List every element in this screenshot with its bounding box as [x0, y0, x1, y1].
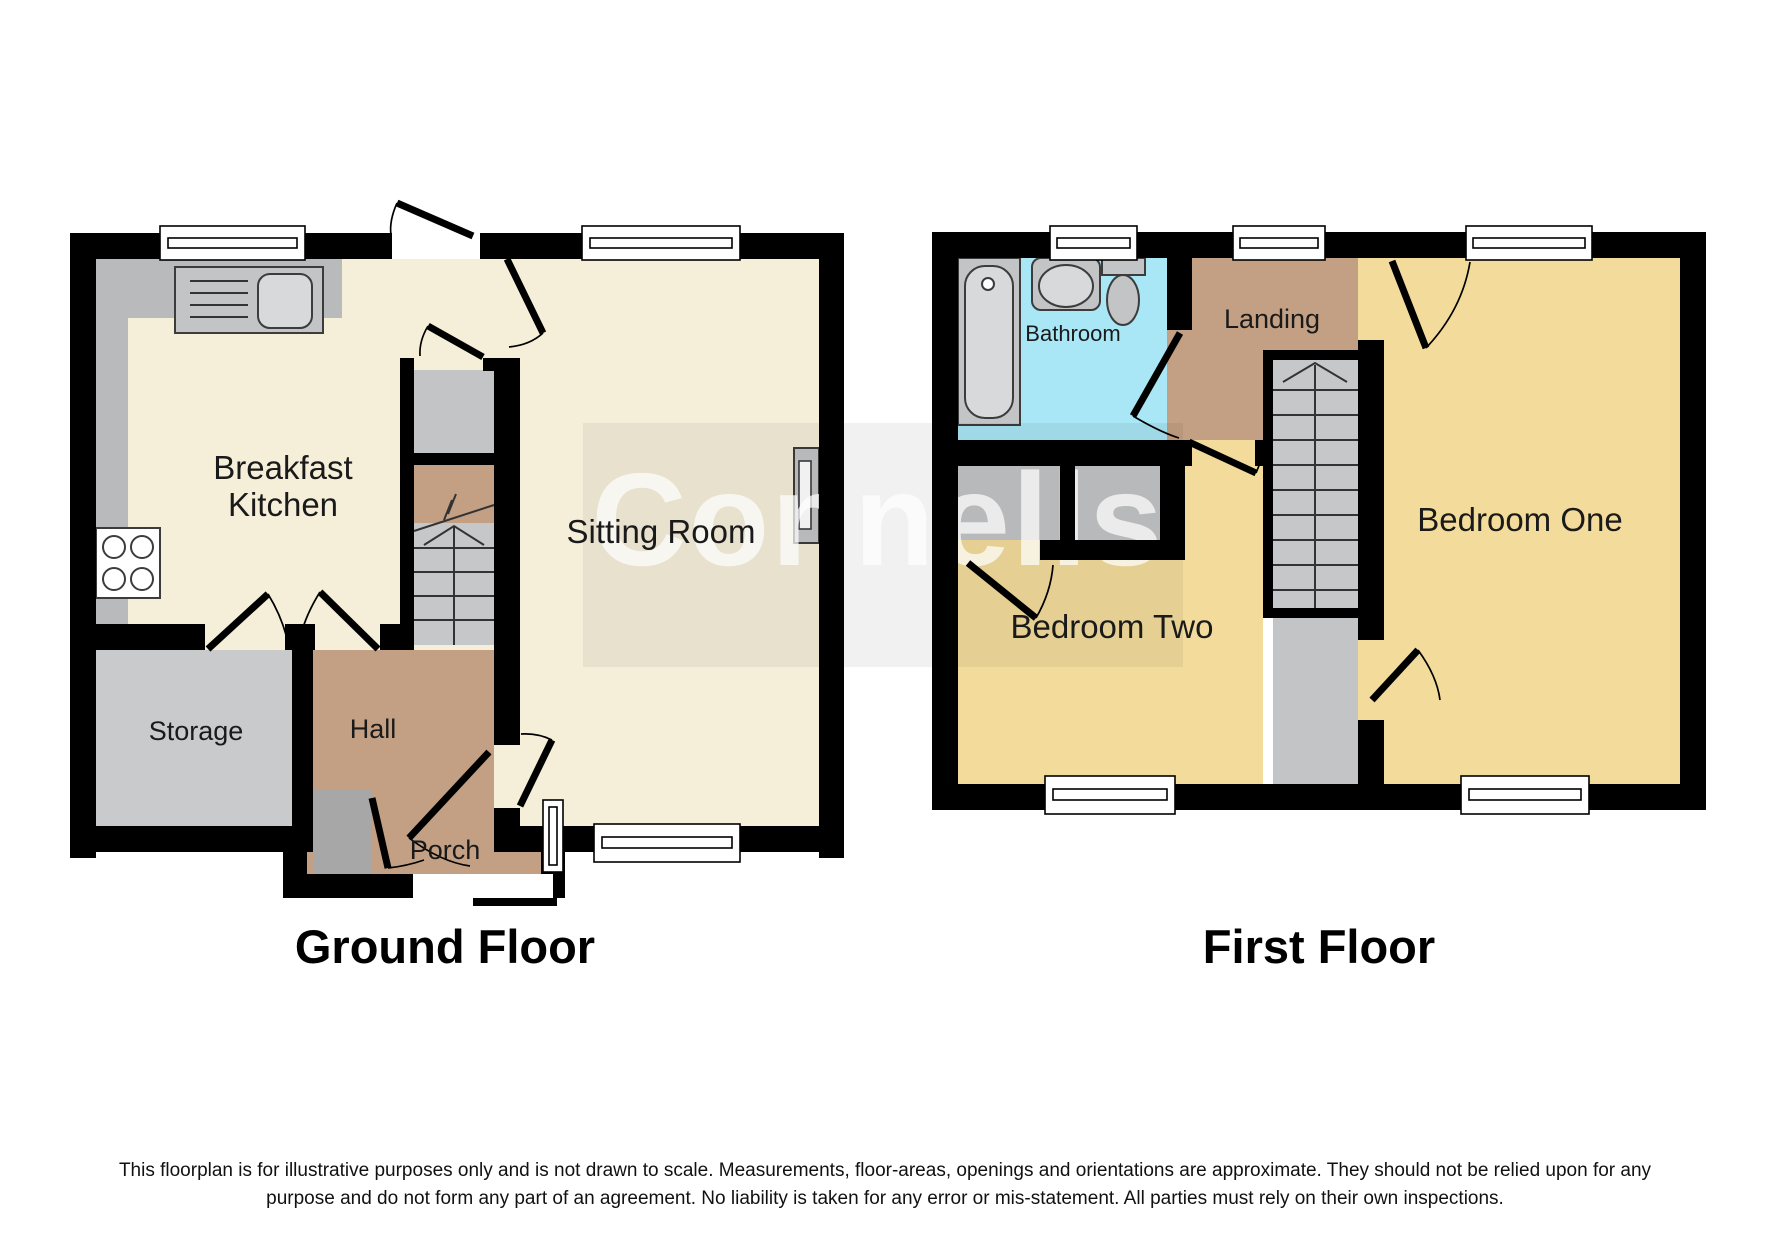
first-floor-title: First Floor [1203, 920, 1435, 973]
window-porch-side [543, 800, 563, 872]
hob-burner [131, 536, 153, 558]
disclaimer-line1: This floorplan is for illustrative purpo… [119, 1160, 1652, 1181]
hob-burner [103, 536, 125, 558]
ground-cupboard [414, 370, 494, 453]
porch-store-block [313, 790, 372, 874]
window-sitting-top [582, 226, 740, 260]
ground-floor-title: Ground Floor [295, 920, 595, 973]
landing-floor-left [1192, 258, 1263, 440]
label-sitting-room: Sitting Room [567, 513, 756, 550]
under-stairs-cupboard [1273, 618, 1358, 784]
wall [553, 874, 565, 898]
wall [70, 826, 313, 852]
wall [70, 624, 205, 650]
label-bathroom: Bathroom [1025, 321, 1120, 346]
wall [1263, 350, 1368, 360]
door-threshold [473, 898, 557, 906]
floorplan-canvas: Connells [0, 0, 1771, 1240]
label-landing: Landing [1224, 304, 1320, 334]
ground-stairs-upper [414, 463, 494, 523]
window-bathroom-top [1050, 226, 1137, 260]
window-bedroom-one-bottom [1461, 776, 1589, 814]
wall [400, 453, 508, 465]
wall [1060, 466, 1075, 540]
wall [494, 358, 520, 745]
window-bedroom-two-bottom [1045, 776, 1175, 814]
wall [283, 874, 413, 898]
toilet-bowl [1107, 275, 1139, 325]
hob-burner [131, 568, 153, 590]
wall [1263, 608, 1368, 618]
door-rear-exterior [391, 203, 473, 236]
wall [932, 440, 1167, 466]
sink-bowl [258, 274, 312, 328]
wall [1160, 440, 1185, 560]
bath-tap [982, 278, 994, 290]
window-sitting-bottom [594, 824, 740, 862]
hob-burner [103, 568, 125, 590]
label-breakfast-kitchen-line2: Kitchen [228, 486, 338, 523]
label-hall: Hall [350, 714, 397, 744]
wall [70, 233, 96, 858]
wall [400, 358, 414, 650]
label-bedroom-two: Bedroom Two [1011, 608, 1214, 645]
disclaimer-line2: purpose and do not form any part of an a… [266, 1188, 1504, 1209]
window-kitchen-top [160, 226, 305, 260]
label-breakfast-kitchen-line1: Breakfast [213, 449, 352, 486]
wall [292, 650, 313, 826]
wall [1358, 340, 1384, 640]
label-storage: Storage [149, 716, 244, 746]
window-landing-top [1233, 226, 1325, 260]
wall [1680, 232, 1706, 810]
window-bedroom-one-top [1466, 226, 1592, 260]
wall [819, 233, 844, 858]
wall [1040, 540, 1160, 560]
wall [380, 624, 400, 650]
wall [494, 808, 520, 826]
label-porch: Porch [410, 835, 481, 865]
basin-bowl [1039, 265, 1093, 307]
wall [1263, 360, 1273, 610]
wall [1167, 258, 1192, 330]
floorplan-page: Connells [0, 0, 1771, 1240]
wall [1358, 720, 1384, 784]
wall [932, 232, 958, 810]
label-bedroom-one: Bedroom One [1417, 501, 1622, 538]
